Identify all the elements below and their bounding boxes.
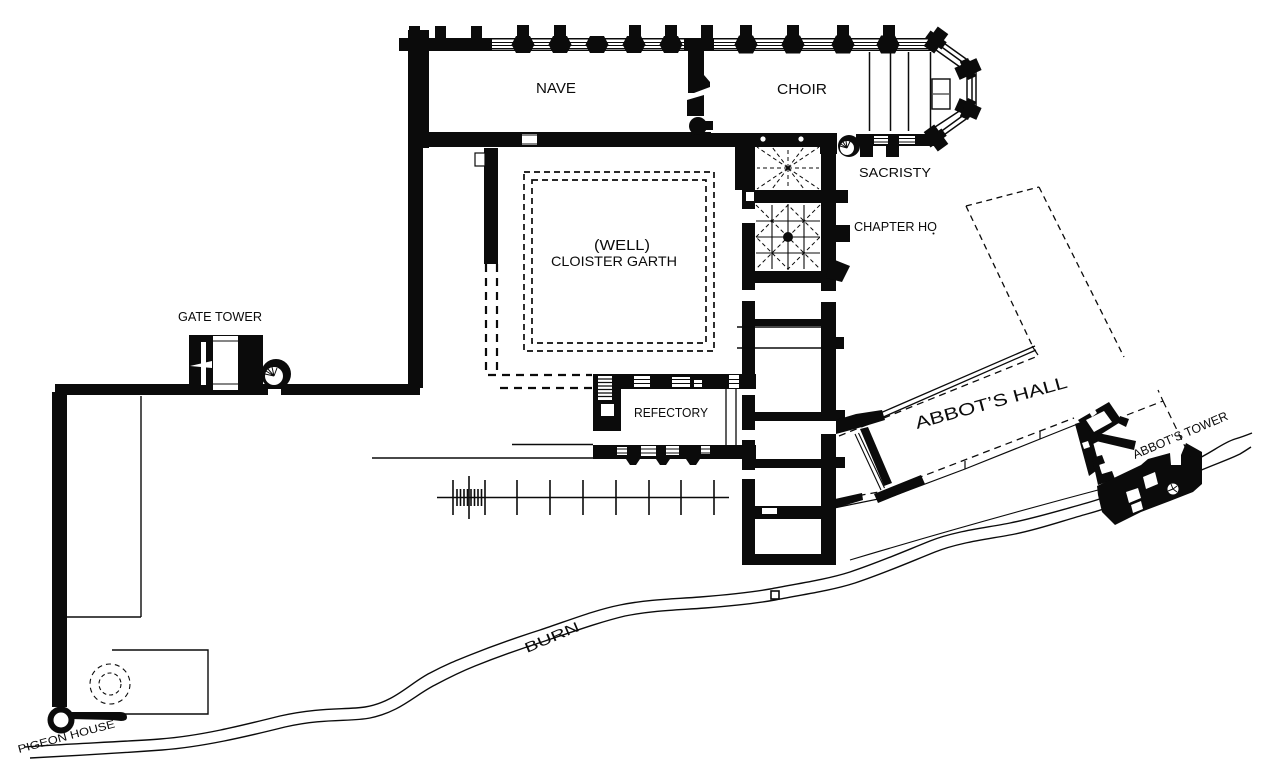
svg-text:SACRISTY: SACRISTY [859, 165, 931, 180]
svg-text:REFECTORY: REFECTORY [634, 406, 709, 420]
svg-text:CLOISTER GARTH: CLOISTER GARTH [551, 253, 677, 269]
svg-text:GATE TOWER: GATE TOWER [178, 310, 262, 324]
svg-text:CHOIR: CHOIR [777, 81, 827, 98]
svg-text:CHAPTER HO: CHAPTER HO [854, 220, 937, 234]
svg-text:(WELL): (WELL) [594, 238, 650, 254]
svg-text:NAVE: NAVE [536, 80, 576, 97]
